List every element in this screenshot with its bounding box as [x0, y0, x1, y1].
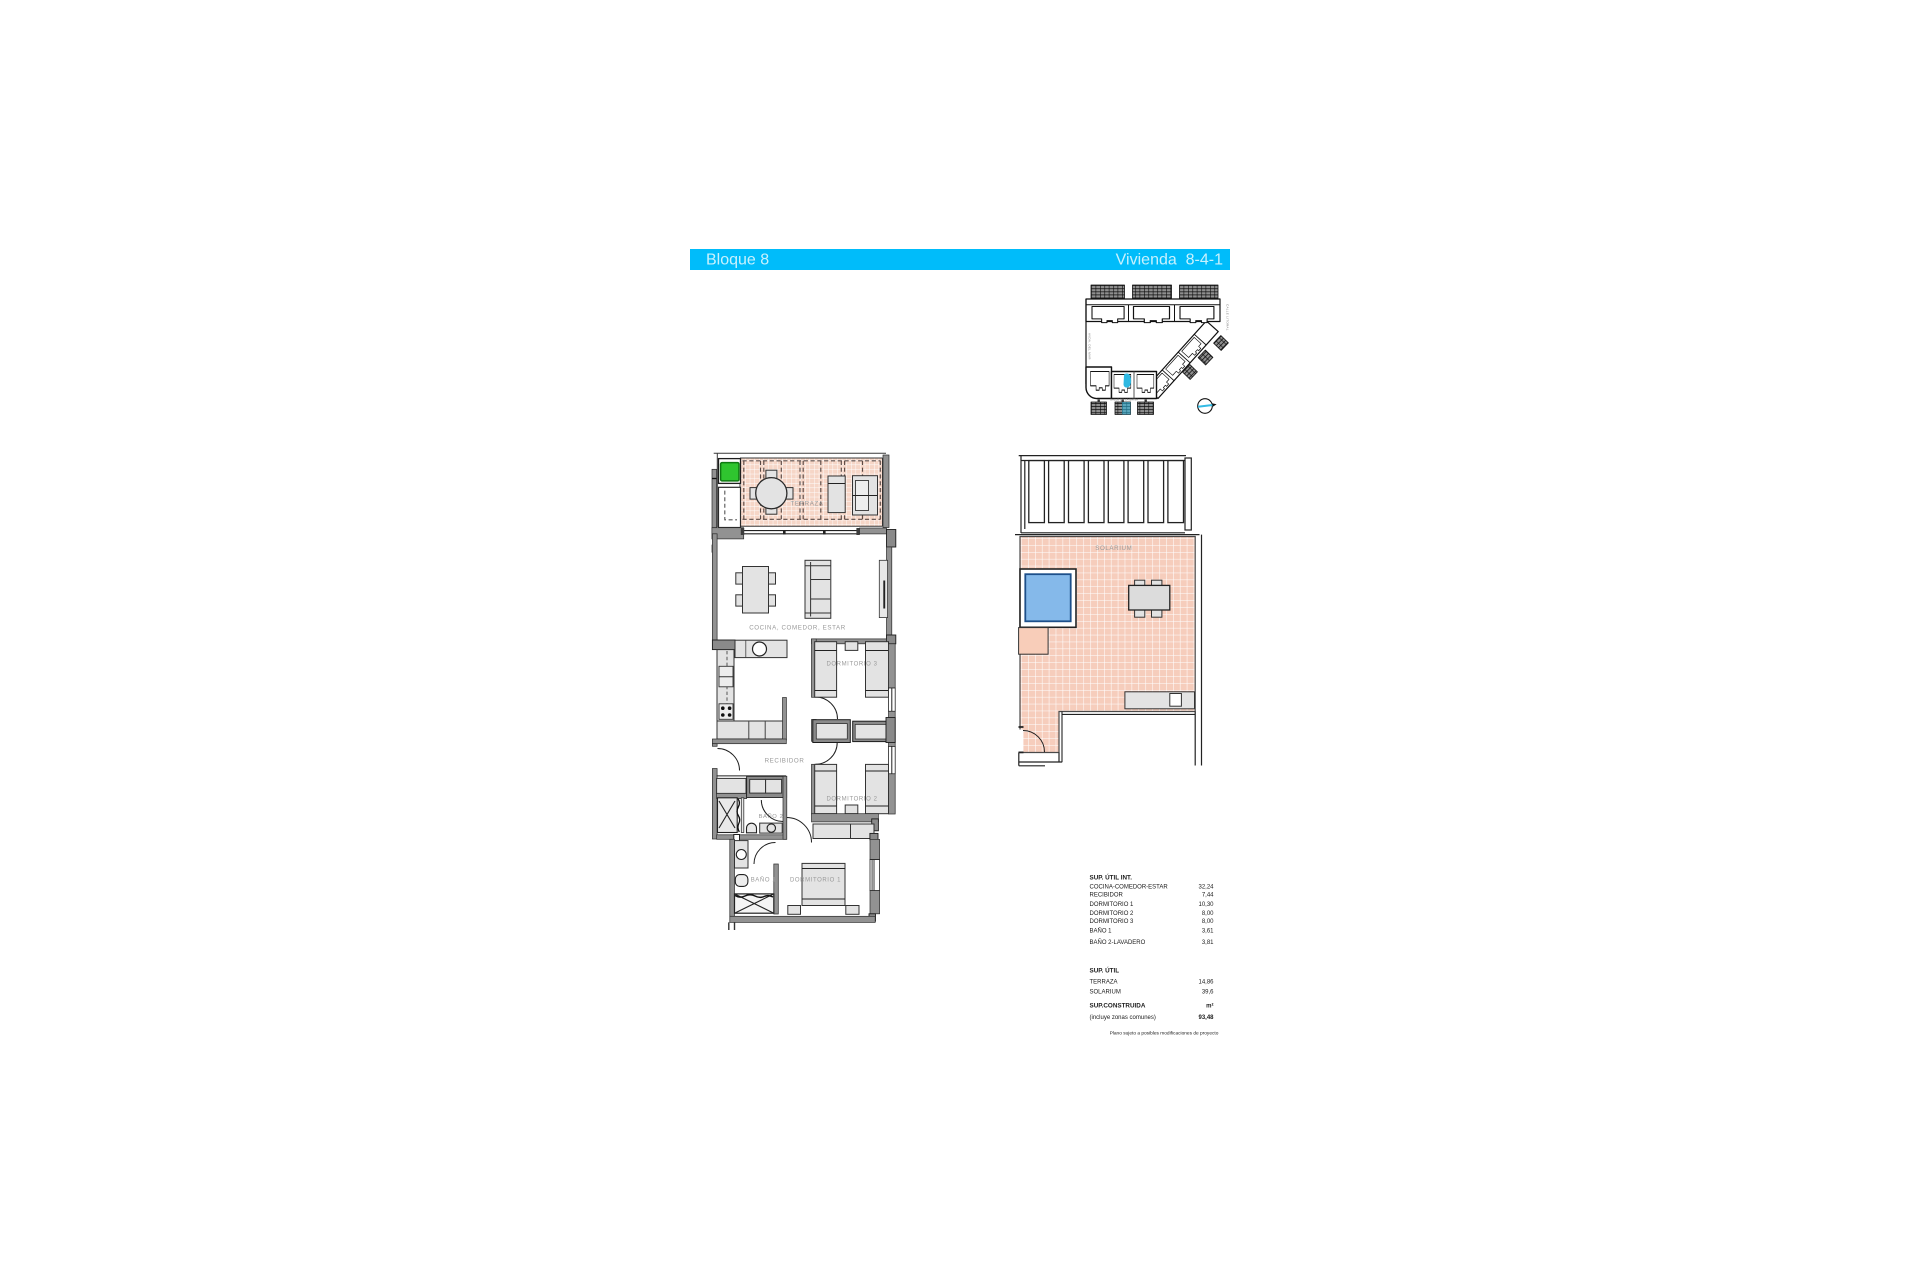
- svg-text:7,44: 7,44: [1202, 893, 1214, 899]
- svg-text:TERRAZA: TERRAZA: [790, 501, 823, 508]
- svg-text:DORMITORIO 2: DORMITORIO 2: [1090, 911, 1135, 917]
- svg-text:CALLE DE LA BRISA: CALLE DE LA BRISA: [1110, 398, 1138, 402]
- svg-text:BAÑO 1: BAÑO 1: [1090, 928, 1113, 935]
- svg-text:CALLE LITORAL: CALLE LITORAL: [1226, 304, 1230, 331]
- svg-text:BAÑO 2: BAÑO 2: [759, 813, 784, 820]
- svg-text:32,24: 32,24: [1198, 884, 1214, 890]
- svg-text:8,00: 8,00: [1202, 919, 1214, 925]
- svg-text:DORMITORIO 1: DORMITORIO 1: [790, 878, 841, 884]
- svg-text:39,6: 39,6: [1202, 990, 1214, 996]
- svg-text:COCINA, COMEDOR, ESTAR: COCINA, COMEDOR, ESTAR: [749, 625, 846, 632]
- svg-text:SOLARIUM: SOLARIUM: [1090, 990, 1121, 996]
- svg-text:RECIBIDOR: RECIBIDOR: [765, 758, 805, 765]
- svg-text:3,61: 3,61: [1202, 929, 1214, 935]
- svg-text:AVDA. DEL MAR: AVDA. DEL MAR: [1088, 333, 1092, 360]
- svg-text:Bloque 8: Bloque 8: [706, 252, 769, 269]
- svg-text:10,30: 10,30: [1198, 902, 1214, 908]
- svg-text:BAÑO 2-LAVADERO: BAÑO 2-LAVADERO: [1090, 939, 1146, 946]
- svg-text:SUP. ÚTIL: SUP. ÚTIL: [1090, 966, 1120, 975]
- svg-text:RECIBIDOR: RECIBIDOR: [1090, 893, 1124, 899]
- svg-text:DORMITORIO 1: DORMITORIO 1: [1090, 902, 1135, 908]
- svg-text:BAÑO 1: BAÑO 1: [751, 877, 777, 884]
- svg-text:m²: m²: [1206, 1003, 1213, 1010]
- svg-text:Plano sujeto a posibles modifi: Plano sujeto a posibles modificaciones d…: [1110, 1031, 1219, 1037]
- svg-text:3,81: 3,81: [1202, 940, 1214, 946]
- svg-text:SUP.CONSTRUIDA: SUP.CONSTRUIDA: [1090, 1003, 1146, 1010]
- svg-text:SOLARIUM: SOLARIUM: [1095, 545, 1132, 552]
- svg-text:(incluye zonas comunes): (incluye zonas comunes): [1090, 1015, 1156, 1021]
- svg-text:TERRAZA: TERRAZA: [1090, 980, 1118, 986]
- svg-text:Vivienda 8-4-1: Vivienda 8-4-1: [1116, 252, 1223, 269]
- svg-text:SUP. ÚTIL INT.: SUP. ÚTIL INT.: [1090, 873, 1133, 882]
- svg-text:DORMITORIO 3: DORMITORIO 3: [1090, 919, 1135, 925]
- svg-text:8,00: 8,00: [1202, 911, 1214, 917]
- svg-text:COCINA-COMEDOR-ESTAR: COCINA-COMEDOR-ESTAR: [1090, 884, 1169, 890]
- svg-text:DORMITORIO 2: DORMITORIO 2: [826, 797, 877, 803]
- svg-text:14,86: 14,86: [1198, 980, 1214, 986]
- svg-text:DORMITORIO 3: DORMITORIO 3: [826, 662, 877, 668]
- svg-text:93,48: 93,48: [1198, 1015, 1214, 1021]
